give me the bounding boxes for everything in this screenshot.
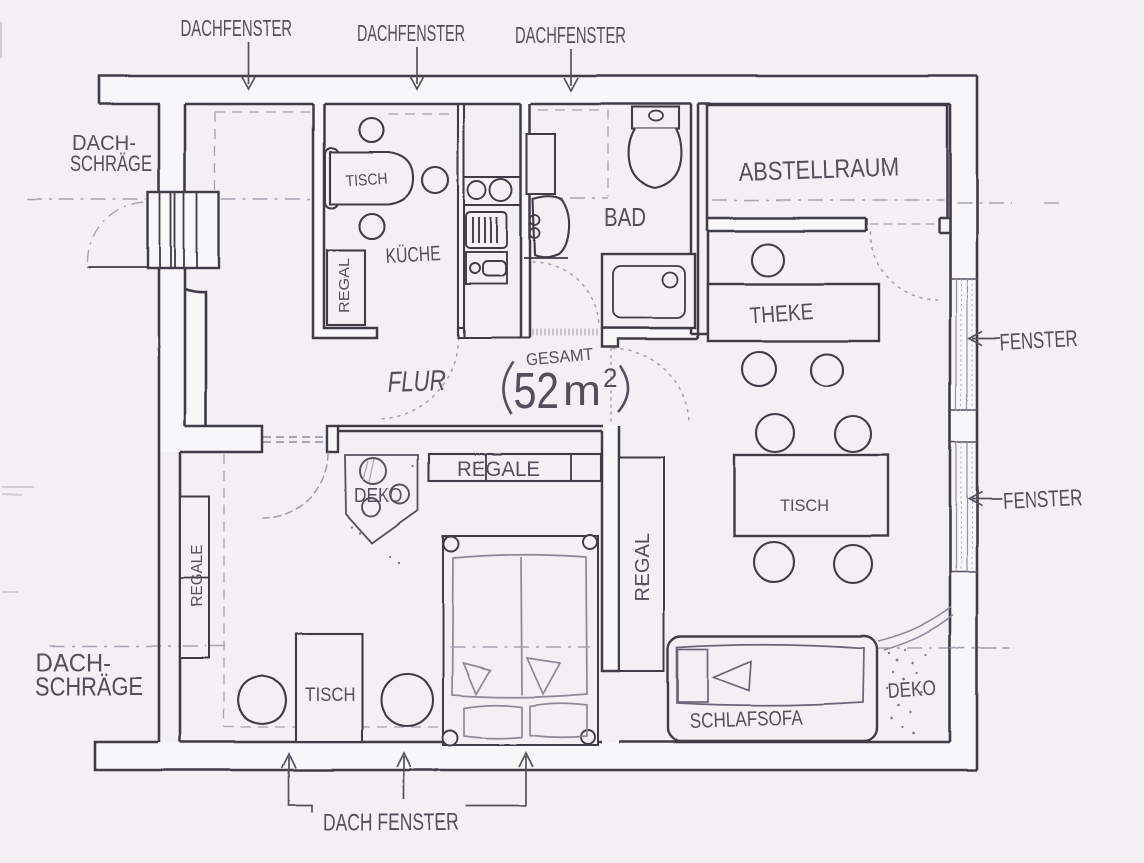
svg-text:REGAL: REGAL (632, 533, 654, 601)
svg-text:DEKO: DEKO (354, 485, 403, 507)
svg-text:m: m (563, 367, 601, 414)
svg-text:ABSTELLRAUM: ABSTELLRAUM (738, 151, 899, 187)
svg-text:TISCH: TISCH (305, 685, 355, 706)
svg-text:BAD: BAD (604, 202, 646, 232)
svg-text:DACH FENSTER: DACH FENSTER (323, 809, 459, 836)
svg-text:2: 2 (603, 363, 617, 393)
svg-text:REGAL: REGAL (336, 258, 353, 313)
svg-text:DACHFENSTER: DACHFENSTER (515, 22, 626, 48)
svg-text:REGALE: REGALE (457, 458, 540, 481)
svg-text:DACHFENSTER: DACHFENSTER (357, 20, 465, 46)
svg-text:52: 52 (513, 363, 559, 419)
svg-text:THEKE: THEKE (749, 298, 815, 328)
svg-text:TISCH: TISCH (780, 496, 829, 515)
svg-text:REGALE: REGALE (189, 545, 206, 607)
svg-text:FLUR: FLUR (387, 365, 446, 399)
svg-text:FENSTER: FENSTER (999, 325, 1078, 355)
svg-text:FENSTER: FENSTER (1002, 484, 1083, 514)
svg-text:SCHLAFSOFA: SCHLAFSOFA (689, 706, 803, 733)
svg-text:SCHRÄGE: SCHRÄGE (70, 151, 152, 176)
svg-text:DACHFENSTER: DACHFENSTER (180, 15, 292, 41)
svg-text:KÜCHE: KÜCHE (385, 242, 441, 268)
svg-text:TISCH: TISCH (345, 170, 388, 190)
svg-text:DEKO: DEKO (887, 677, 937, 703)
svg-text:SCHRÄGE: SCHRÄGE (35, 671, 143, 701)
